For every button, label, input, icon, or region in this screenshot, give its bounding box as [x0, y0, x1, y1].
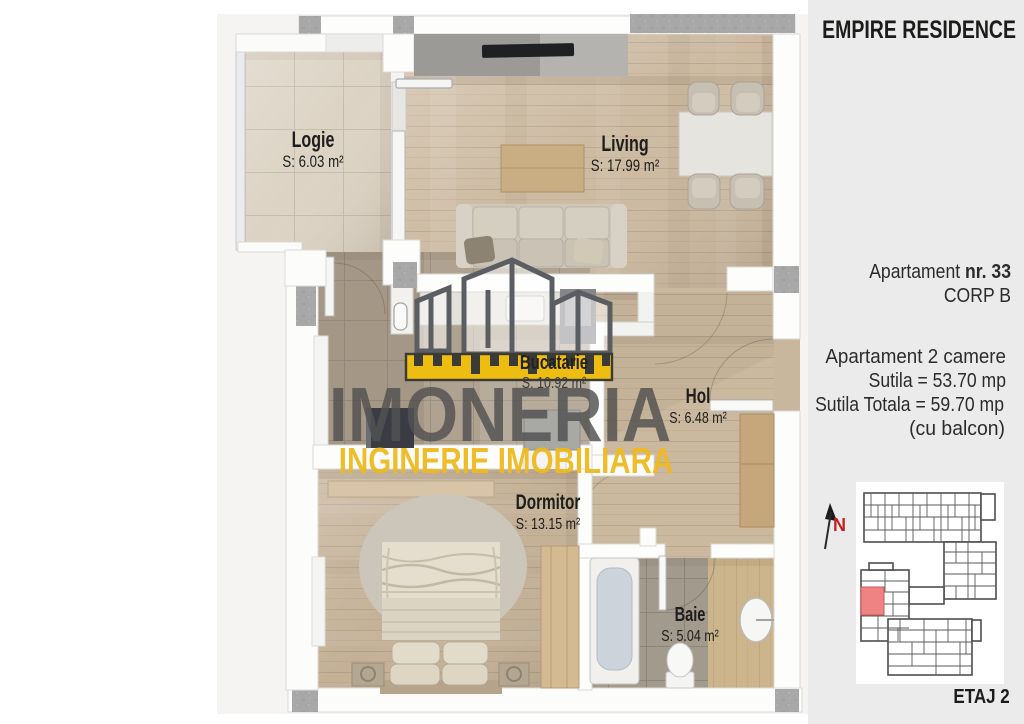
svg-text:CORP B: CORP B	[944, 284, 1011, 306]
svg-text:Baie: Baie	[675, 603, 706, 626]
svg-text:N: N	[833, 515, 846, 535]
svg-text:S: 13.15 m²: S: 13.15 m²	[516, 516, 581, 534]
svg-text:Apartament 2 camere: Apartament 2 camere	[825, 345, 1006, 368]
svg-text:INGINERIE IMOBILIARA: INGINERIE IMOBILIARA	[339, 440, 673, 480]
svg-text:Dormitor: Dormitor	[516, 490, 581, 514]
svg-text:(cu balcon): (cu balcon)	[909, 418, 1005, 440]
svg-text:Logie: Logie	[292, 129, 335, 153]
svg-text:Sutila Totala = 59.70 mp: Sutila Totala = 59.70 mp	[815, 393, 1004, 415]
svg-text:S: 6.48 m²: S: 6.48 m²	[669, 410, 727, 428]
svg-text:Living: Living	[601, 133, 648, 157]
svg-text:Hol: Hol	[686, 384, 711, 408]
svg-text:S: 5.04 m²: S: 5.04 m²	[661, 628, 719, 646]
svg-text:Apartament nr. 33: Apartament nr. 33	[869, 260, 1011, 282]
svg-text:S: 17.99 m²: S: 17.99 m²	[591, 157, 659, 176]
svg-text:Bucatarie: Bucatarie	[520, 351, 588, 374]
svg-text:S: 6.03 m²: S: 6.03 m²	[282, 153, 343, 172]
svg-text:EMPIRE RESIDENCE: EMPIRE RESIDENCE	[822, 16, 1016, 44]
svg-text:ETAJ 2: ETAJ 2	[953, 685, 1009, 708]
svg-text:Sutila = 53.70 mp: Sutila = 53.70 mp	[869, 369, 1006, 391]
